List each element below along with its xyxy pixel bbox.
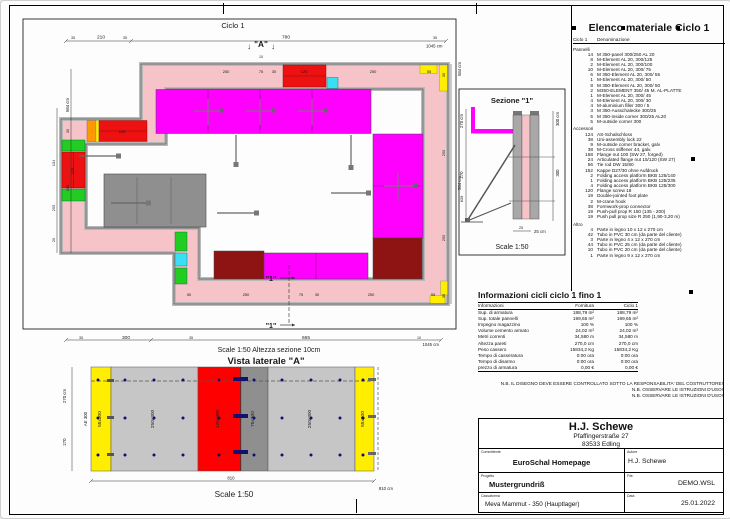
info-table-footer-line xyxy=(478,371,638,373)
svg-text:300: 300 xyxy=(555,169,560,177)
svg-text:810: 810 xyxy=(227,476,235,481)
material-list-title: Elenco materiale Ciclo 1 xyxy=(573,22,725,34)
disclaimer-notes: N.B. IL DISEGNO DEVE ESSERE CONTROLLATO … xyxy=(479,381,723,399)
info-fornitura-value: 0,00 € xyxy=(548,365,594,371)
svg-text:1045 cm: 1045 cm xyxy=(423,342,440,347)
svg-text:810 cm: 810 cm xyxy=(379,486,394,491)
svg-text:639: 639 xyxy=(459,196,464,203)
material-qty: 5 xyxy=(573,119,593,124)
svg-text:250x300: 250x300 xyxy=(307,409,313,428)
svg-text:1045 cm: 1045 cm xyxy=(426,44,443,49)
svg-text:20: 20 xyxy=(51,237,56,242)
svg-text:↓: ↓ xyxy=(247,42,251,51)
section-marker-a: ↓ "A" ↓ 10 xyxy=(247,40,275,59)
material-qty: 19 xyxy=(573,214,593,219)
date-label: Data xyxy=(627,494,634,498)
formwork-value: Meva Mammut - 350 (Hauptlager) xyxy=(479,493,624,508)
title-block-company: H.J. Schewe Pfaffingerstraße 27 83533 Ed… xyxy=(479,419,723,449)
material-qty: 1 xyxy=(573,253,593,258)
plan-view: Ciclo 1 xyxy=(21,13,471,335)
cycle-info-title: Informazioni cicli ciclo 1 fino 1 xyxy=(478,290,638,300)
title-block-row-client: Committente EuroSchal Homepage Autore H.… xyxy=(479,449,723,473)
formwork-label: Cassaforma xyxy=(481,494,500,498)
company-name: H.J. Schewe xyxy=(479,421,723,433)
info-col-ciclo: Ciclo 1 xyxy=(594,303,638,309)
ae-label: AE 300 xyxy=(83,411,88,426)
client-label: Committente xyxy=(481,450,501,454)
material-row: 1 Parte in legno 9 x 12 x 270 cm xyxy=(573,253,725,258)
material-name: Parte in legno 9 x 12 x 270 cm xyxy=(597,253,725,258)
svg-text:250: 250 xyxy=(223,69,230,74)
svg-text:125: 125 xyxy=(119,129,126,134)
project-label: Progetto xyxy=(481,474,494,478)
push-pull-props xyxy=(461,145,515,222)
svg-text:780: 780 xyxy=(282,35,290,41)
section-view: 584 cm Sezione "1" 300 cm 300 270 xyxy=(453,41,571,261)
svg-text:"A": "A" xyxy=(254,40,268,49)
svg-text:25 cm: 25 cm xyxy=(534,229,546,234)
svg-text:55: 55 xyxy=(427,69,431,74)
drawing-sheet: Ciclo 1 xyxy=(0,0,730,519)
svg-text:250: 250 xyxy=(368,292,375,297)
elevation-pretitle: Scale 1:50 Altezza sezione 10cm xyxy=(218,347,321,354)
svg-text:250: 250 xyxy=(441,234,446,241)
registration-mark xyxy=(689,290,693,294)
title-block-row-project: Progetto Mustergrundriß File. DEMO.WSL xyxy=(479,473,723,493)
section-title: Sezione "1" xyxy=(491,96,534,105)
disclaimer-line: N.B. OSSERVARE LE ISTRUZIONI D'USO! xyxy=(479,393,723,399)
material-row: 5 M-outside corner 300 xyxy=(573,119,725,124)
info-ciclo-value: 0,00 € xyxy=(594,365,638,371)
svg-text:192: 192 xyxy=(65,185,70,192)
material-col-qty: Ciclo 1 xyxy=(573,37,597,42)
svg-text:35: 35 xyxy=(123,36,127,40)
svg-text:270: 270 xyxy=(62,438,67,446)
material-name: Push pull prop size R 250 (1,90-3,20 m) xyxy=(597,214,725,219)
cycle-info-table: Informazioni cicli ciclo 1 fino 1 Inform… xyxy=(478,290,638,373)
svg-text:35: 35 xyxy=(79,336,83,340)
cycle-info-header: Informazioni Fornitura Ciclo 1 xyxy=(478,302,638,310)
svg-text:↓: ↓ xyxy=(271,42,275,51)
svg-text:125: 125 xyxy=(70,168,75,175)
author-label: Autore xyxy=(627,450,637,454)
info-label: prezzo di armatura xyxy=(478,365,548,371)
svg-text:55x300: 55x300 xyxy=(360,411,366,427)
info-col-fornitura: Fornitura xyxy=(548,303,594,309)
svg-text:210: 210 xyxy=(97,35,105,41)
elevation-panels xyxy=(91,367,374,471)
project-value: Mustergrundriß xyxy=(479,473,624,489)
svg-text:270 cm: 270 cm xyxy=(62,389,67,404)
svg-text:10: 10 xyxy=(417,336,421,340)
title-block-row-formwork: Cassaforma Meva Mammut - 350 (Hauptlager… xyxy=(479,493,723,512)
wall-section xyxy=(509,111,555,219)
svg-text:75x300: 75x300 xyxy=(250,411,256,427)
svg-text:75: 75 xyxy=(259,69,263,74)
svg-text:270 cm: 270 cm xyxy=(459,114,464,129)
column-divider-line xyxy=(571,6,572,291)
author-value: H.J. Schewe xyxy=(628,449,723,465)
svg-text:665: 665 xyxy=(302,335,310,341)
svg-text:55x300: 55x300 xyxy=(97,411,103,427)
material-list-header: Ciclo 1 Denominazione xyxy=(573,37,725,44)
company-street: Pfaffingerstraße 27 xyxy=(479,433,723,441)
info-col-label: Informazioni xyxy=(478,303,548,309)
plan-title: Ciclo 1 xyxy=(221,21,244,30)
svg-text:"1": "1" xyxy=(266,323,277,330)
svg-text:"1": "1" xyxy=(266,276,277,283)
svg-text:125x300: 125x300 xyxy=(215,409,221,428)
svg-text:270: 270 xyxy=(459,171,464,179)
svg-text:35: 35 xyxy=(433,36,437,40)
svg-text:75: 75 xyxy=(299,292,303,297)
info-row: prezzo di armatura 0,00 € 0,00 € xyxy=(478,365,638,371)
svg-text:300: 300 xyxy=(122,335,130,341)
svg-text:250: 250 xyxy=(370,69,377,74)
cycle-info-rows: Sup. di armatura 188,79 m² 188,79 m² Sup… xyxy=(478,310,638,371)
material-col-name: Denominazione xyxy=(597,37,630,42)
material-list: Elenco materiale Ciclo 1 Ciclo 1 Denomin… xyxy=(573,22,725,258)
svg-text:35: 35 xyxy=(189,336,193,340)
svg-text:250x300: 250x300 xyxy=(150,409,156,428)
section-scale: Scale 1:50 xyxy=(495,244,528,251)
material-name: M-outside corner 300 xyxy=(597,119,725,124)
svg-text:35: 35 xyxy=(71,36,75,40)
svg-text:134: 134 xyxy=(51,159,56,166)
material-rows: Pannelli 14 M 350-panel 300/250 AL 20 8 … xyxy=(573,47,725,258)
svg-text:250: 250 xyxy=(441,149,446,156)
svg-text:55: 55 xyxy=(431,292,435,297)
file-label: File. xyxy=(627,474,634,478)
plan-dim-bottom: 35 300 35 665 10 1045 cm xyxy=(64,335,443,347)
file-value: DEMO.WSL xyxy=(628,473,723,487)
plan-right-total-dim: 584 cm xyxy=(457,62,462,77)
elevation-view: 35 300 35 665 10 1045 cm Scale 1:50 Alte… xyxy=(21,334,471,516)
svg-text:10: 10 xyxy=(259,55,263,59)
svg-text:250: 250 xyxy=(243,292,250,297)
svg-text:255: 255 xyxy=(51,205,56,212)
company-city: 83533 Edling xyxy=(479,441,723,449)
material-row: 19 Push pull prop size R 250 (1,90-3,20 … xyxy=(573,214,725,219)
elevation-scale: Scale 1:50 xyxy=(215,490,254,499)
title-block: H.J. Schewe Pfaffingerstraße 27 83533 Ed… xyxy=(478,418,724,513)
svg-text:300 cm: 300 cm xyxy=(555,112,560,127)
fold-tick xyxy=(476,3,477,14)
svg-text:125: 125 xyxy=(301,69,308,74)
elevation-title: Vista laterale "A" xyxy=(228,356,305,367)
svg-text:584 cm: 584 cm xyxy=(65,98,70,113)
date-value: 25.01.2022 xyxy=(628,493,723,507)
svg-text:25: 25 xyxy=(519,226,523,230)
